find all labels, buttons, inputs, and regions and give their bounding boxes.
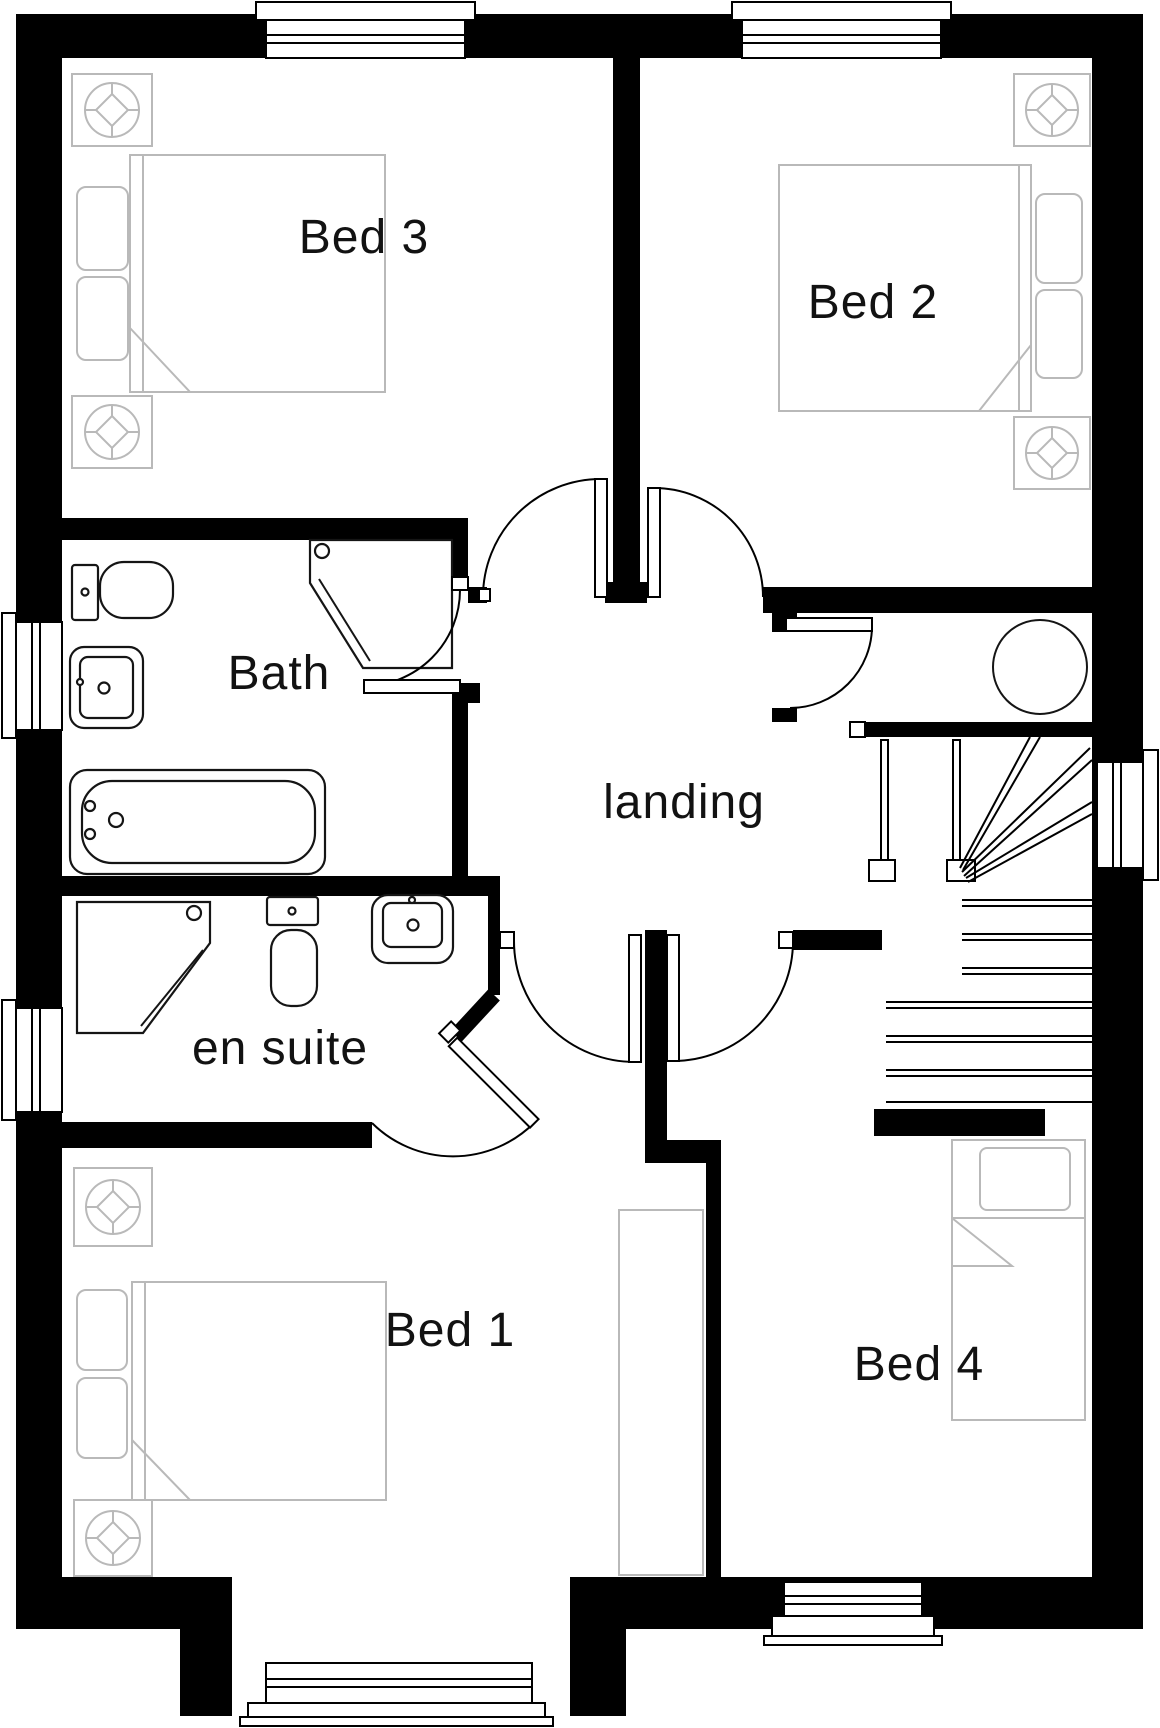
label-bed2: Bed 2 <box>808 276 938 329</box>
wall-bath-ensuite <box>16 876 500 896</box>
window-bath-left <box>2 613 62 738</box>
wall-bed2-bottom <box>763 587 1092 613</box>
nightstand-lamp-symbol <box>1014 417 1090 489</box>
door-airing-cupboard <box>786 618 872 737</box>
door-bed2 <box>648 488 763 597</box>
wall-left <box>16 14 62 1629</box>
wall-cupboard-left-bottom <box>772 708 797 722</box>
toilet <box>267 897 318 1006</box>
window-bed1-bay <box>240 1663 553 1726</box>
airing-cupboard <box>993 620 1087 714</box>
bed-fold <box>952 1218 1012 1266</box>
wall-bed3-bed2-divider <box>613 58 640 582</box>
door-bed4 <box>667 932 793 1061</box>
bay-pier-left <box>180 1629 232 1716</box>
nightstand-lamp-symbol <box>74 1168 152 1246</box>
banister <box>953 740 960 862</box>
wall-landing-balustrade <box>793 930 882 950</box>
corner-shower <box>77 902 210 1033</box>
label-landing: landing <box>603 776 765 829</box>
wall-bath-right-lower <box>452 683 468 876</box>
label-bed4: Bed 4 <box>854 1338 984 1391</box>
washbasin <box>70 647 143 728</box>
label-bath: Bath <box>228 647 331 700</box>
bed-fold <box>130 328 190 392</box>
door-ensuite <box>372 1021 539 1156</box>
window-ensuite-left <box>2 1000 62 1120</box>
nightstand-lamp-symbol <box>72 396 152 468</box>
label-bed3: Bed 3 <box>299 211 429 264</box>
door-bed3 <box>479 479 607 601</box>
wall-landing-south-stub <box>645 930 667 1140</box>
wall-top <box>16 14 1143 58</box>
double-bed <box>77 155 385 392</box>
staircase <box>869 737 1092 1102</box>
door-bed1 <box>500 932 641 1062</box>
banister <box>881 740 888 862</box>
wall-ensuite-diagonal <box>456 995 494 1036</box>
wall-bottom-left <box>16 1577 232 1629</box>
hot-water-cylinder <box>993 620 1087 714</box>
bath-fixtures <box>70 540 452 874</box>
window-bed3-top <box>256 2 475 58</box>
bed1-furniture <box>74 1168 703 1576</box>
nightstand-lamp-symbol <box>1014 74 1090 146</box>
wall-bed1-bed4-divider <box>706 1163 721 1577</box>
bed-fold <box>979 345 1031 411</box>
double-bed <box>77 1282 386 1500</box>
wall-under-stairs <box>874 1109 1045 1136</box>
floor-plan-page: Bed 3 Bed 2 Bath landing en suite Bed 1 … <box>0 0 1160 1728</box>
wall-divider-jog <box>645 1140 721 1163</box>
newel-post <box>869 860 895 881</box>
bed3-furniture <box>72 74 385 468</box>
nightstand-lamp-symbol <box>74 1500 152 1576</box>
floor-plan-svg: Bed 3 Bed 2 Bath landing en suite Bed 1 … <box>0 0 1160 1728</box>
toilet <box>72 562 173 620</box>
label-bed1: Bed 1 <box>385 1304 515 1357</box>
nightstand-lamp-symbol <box>72 74 152 146</box>
ensuite-fixtures <box>77 895 453 1033</box>
label-en-suite: en suite <box>192 1022 368 1075</box>
wall-landing-door-chunk <box>605 582 647 603</box>
wall-bed3-bath <box>16 518 468 540</box>
bay-pier-right <box>570 1629 626 1716</box>
wall-ensuite-bed1 <box>16 1122 372 1148</box>
wall-cupboard-floor <box>865 722 1093 737</box>
window-bed4-bottom <box>764 1582 942 1645</box>
bed-fold <box>132 1440 190 1500</box>
wardrobe <box>619 1210 703 1575</box>
washbasin <box>372 895 453 963</box>
window-bed2-top <box>732 2 951 58</box>
wall-ensuite-right <box>488 896 500 995</box>
bathtub <box>70 770 325 874</box>
corner-shower <box>310 540 452 668</box>
window-stairs-right <box>1097 750 1158 880</box>
